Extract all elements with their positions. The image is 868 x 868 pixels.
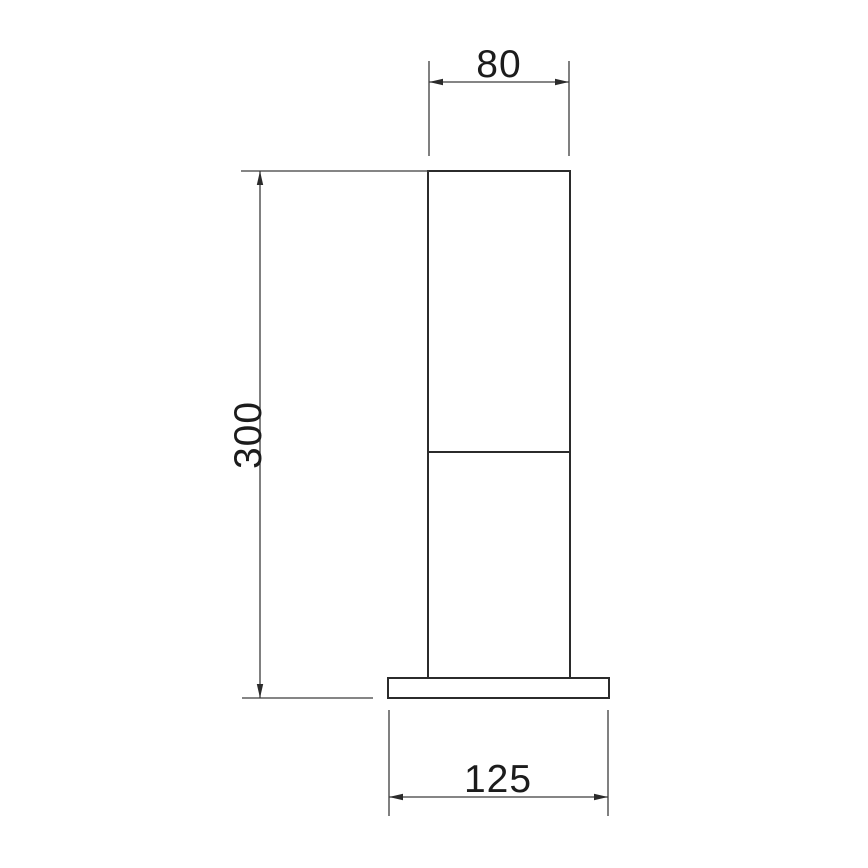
- arrow-right-icon: [594, 794, 608, 800]
- dimension-overall-height: 300: [227, 171, 429, 698]
- dimension-column-width: 80: [429, 43, 569, 156]
- arrow-left-icon: [389, 794, 403, 800]
- arrow-down-icon: [257, 684, 263, 698]
- arrow-left-icon: [429, 79, 443, 85]
- dim-width-label: 80: [476, 43, 521, 86]
- arrow-up-icon: [257, 171, 263, 185]
- lamp-column-outline: [428, 171, 570, 678]
- technical-drawing: 80 300 125: [0, 0, 868, 868]
- lamp-outline: [388, 171, 609, 698]
- drawing-canvas: 80 300 125: [0, 0, 868, 868]
- dim-height-label: 300: [227, 401, 270, 469]
- dimension-base-width: 125: [389, 710, 608, 816]
- dim-base-label: 125: [464, 758, 532, 801]
- base-plate-outline: [388, 678, 609, 698]
- arrow-right-icon: [555, 79, 569, 85]
